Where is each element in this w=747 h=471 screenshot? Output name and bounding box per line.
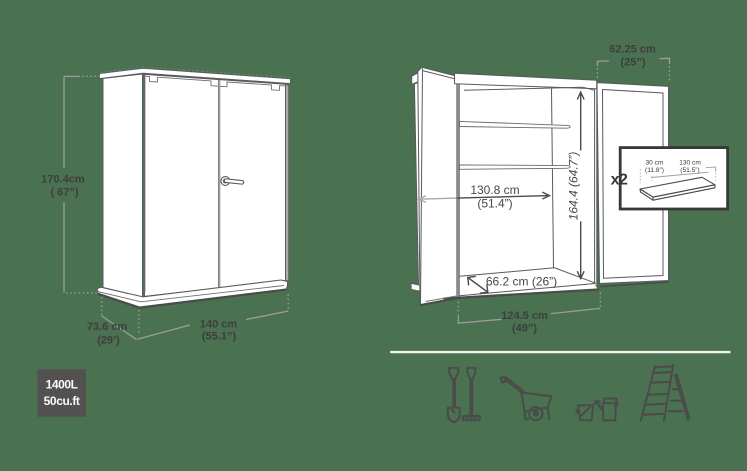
svg-text:( 67”): ( 67”): [50, 187, 78, 199]
svg-text:50cu.ft: 50cu.ft: [44, 394, 80, 408]
svg-text:(11.8”): (11.8”): [645, 167, 664, 174]
svg-text:124.5 cm: 124.5 cm: [501, 310, 548, 322]
svg-text:73.6 cm: 73.6 cm: [87, 321, 128, 333]
svg-text:170.4cm: 170.4cm: [41, 173, 85, 185]
svg-text:(49”): (49”): [512, 322, 537, 334]
svg-text:(29’): (29’): [97, 334, 120, 346]
svg-text:(51.5”): (51.5”): [680, 167, 699, 174]
svg-text:130.8 cm: 130.8 cm: [470, 183, 519, 197]
svg-text:(55.1”): (55.1”): [202, 330, 237, 342]
svg-text:1400L: 1400L: [46, 378, 78, 392]
svg-text:30 cm: 30 cm: [646, 159, 664, 166]
svg-text:130 cm: 130 cm: [679, 159, 701, 166]
svg-text:164.4 (64.7”): 164.4 (64.7”): [567, 152, 581, 221]
svg-text:62.25 cm: 62.25 cm: [609, 43, 656, 55]
svg-text:x2: x2: [611, 171, 628, 188]
svg-text:66.2 cm (26”): 66.2 cm (26”): [486, 274, 557, 288]
svg-text:(25”): (25”): [620, 57, 645, 69]
svg-text:(51.4”): (51.4”): [477, 196, 512, 210]
svg-text:140 cm: 140 cm: [200, 319, 238, 331]
